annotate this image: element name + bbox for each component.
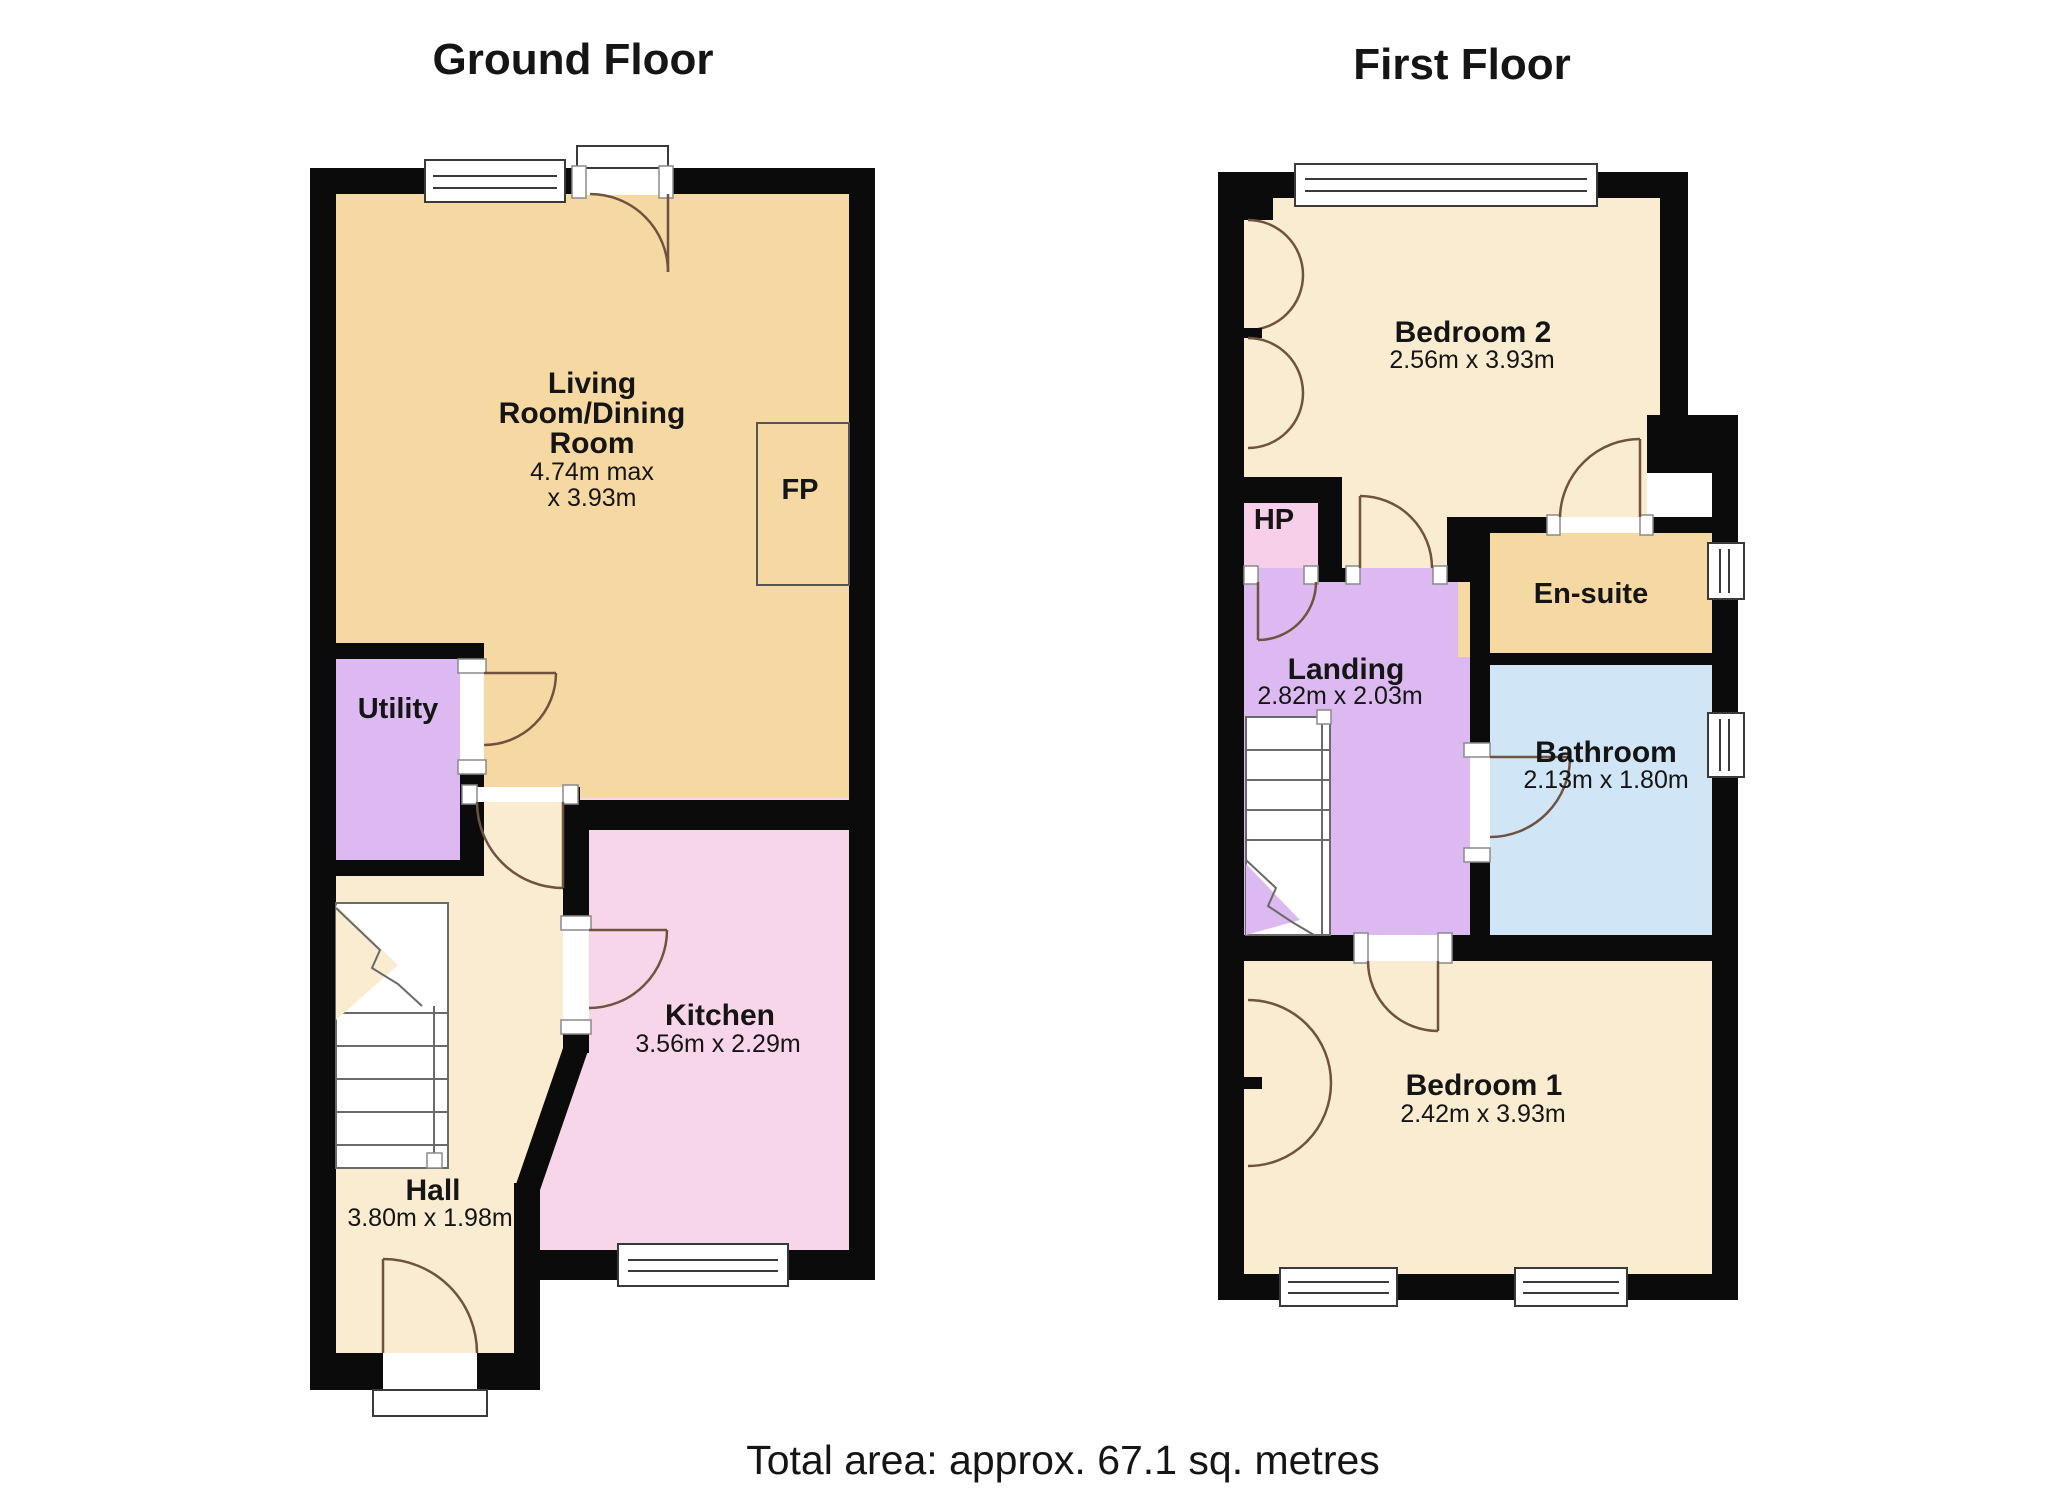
living-room-label-line2: Room/Dining: [499, 397, 686, 430]
bedroom1-window-right: [1515, 1268, 1627, 1306]
hall-dims: 3.80m x 1.98m: [347, 1204, 512, 1232]
kitchen-window: [618, 1244, 788, 1286]
ensuite-window: [1708, 543, 1744, 599]
fireplace-label: FP: [781, 474, 818, 506]
living-room-label-line3: Room: [550, 427, 635, 460]
living-room-dims-line1: 4.74m max: [530, 458, 654, 486]
hall-label: Hall: [405, 1174, 460, 1207]
utility-label: Utility: [358, 693, 439, 725]
bedroom1-label: Bedroom 1: [1406, 1069, 1563, 1102]
landing-dims: 2.82m x 2.03m: [1257, 682, 1422, 710]
ground-floor-title: Ground Floor: [432, 35, 713, 84]
bathroom-floor: [1478, 659, 1712, 939]
ground-floor-plan: Living Room/Dining Room 4.74m max x 3.93…: [310, 146, 875, 1416]
living-room-dims-line2: x 3.93m: [548, 484, 637, 512]
ground-room-fills: [318, 176, 867, 1363]
living-room-label-line1: Living: [548, 367, 636, 400]
bathroom-dims: 2.13m x 1.80m: [1523, 766, 1688, 794]
bedroom2-label: Bedroom 2: [1395, 316, 1552, 349]
ensuite-label: En-suite: [1534, 578, 1648, 610]
bathroom-window: [1708, 713, 1744, 777]
bedroom2-window: [1295, 164, 1597, 206]
bedroom1-dims: 2.42m x 3.93m: [1400, 1100, 1565, 1128]
hp-label: HP: [1254, 504, 1294, 536]
bedroom2-dims: 2.56m x 3.93m: [1389, 346, 1554, 374]
total-area-text: Total area: approx. 67.1 sq. metres: [746, 1437, 1380, 1483]
floorplan-page: Ground Floor First Floor: [0, 0, 2048, 1489]
kitchen-label: Kitchen: [665, 999, 775, 1032]
first-floor-plan: Bedroom 2 2.56m x 3.93m HP Landing 2.82m…: [1218, 164, 1744, 1306]
bathroom-label: Bathroom: [1535, 736, 1677, 769]
bedroom1-window-left: [1280, 1268, 1397, 1306]
first-floor-title: First Floor: [1353, 40, 1571, 89]
first-staircase: [1246, 710, 1331, 935]
living-room-window: [425, 160, 565, 202]
ground-staircase: [336, 903, 448, 1168]
kitchen-dims: 3.56m x 2.29m: [635, 1030, 800, 1058]
floorplan-canvas: Ground Floor First Floor: [0, 0, 2048, 1489]
utility-floor: [318, 648, 480, 870]
